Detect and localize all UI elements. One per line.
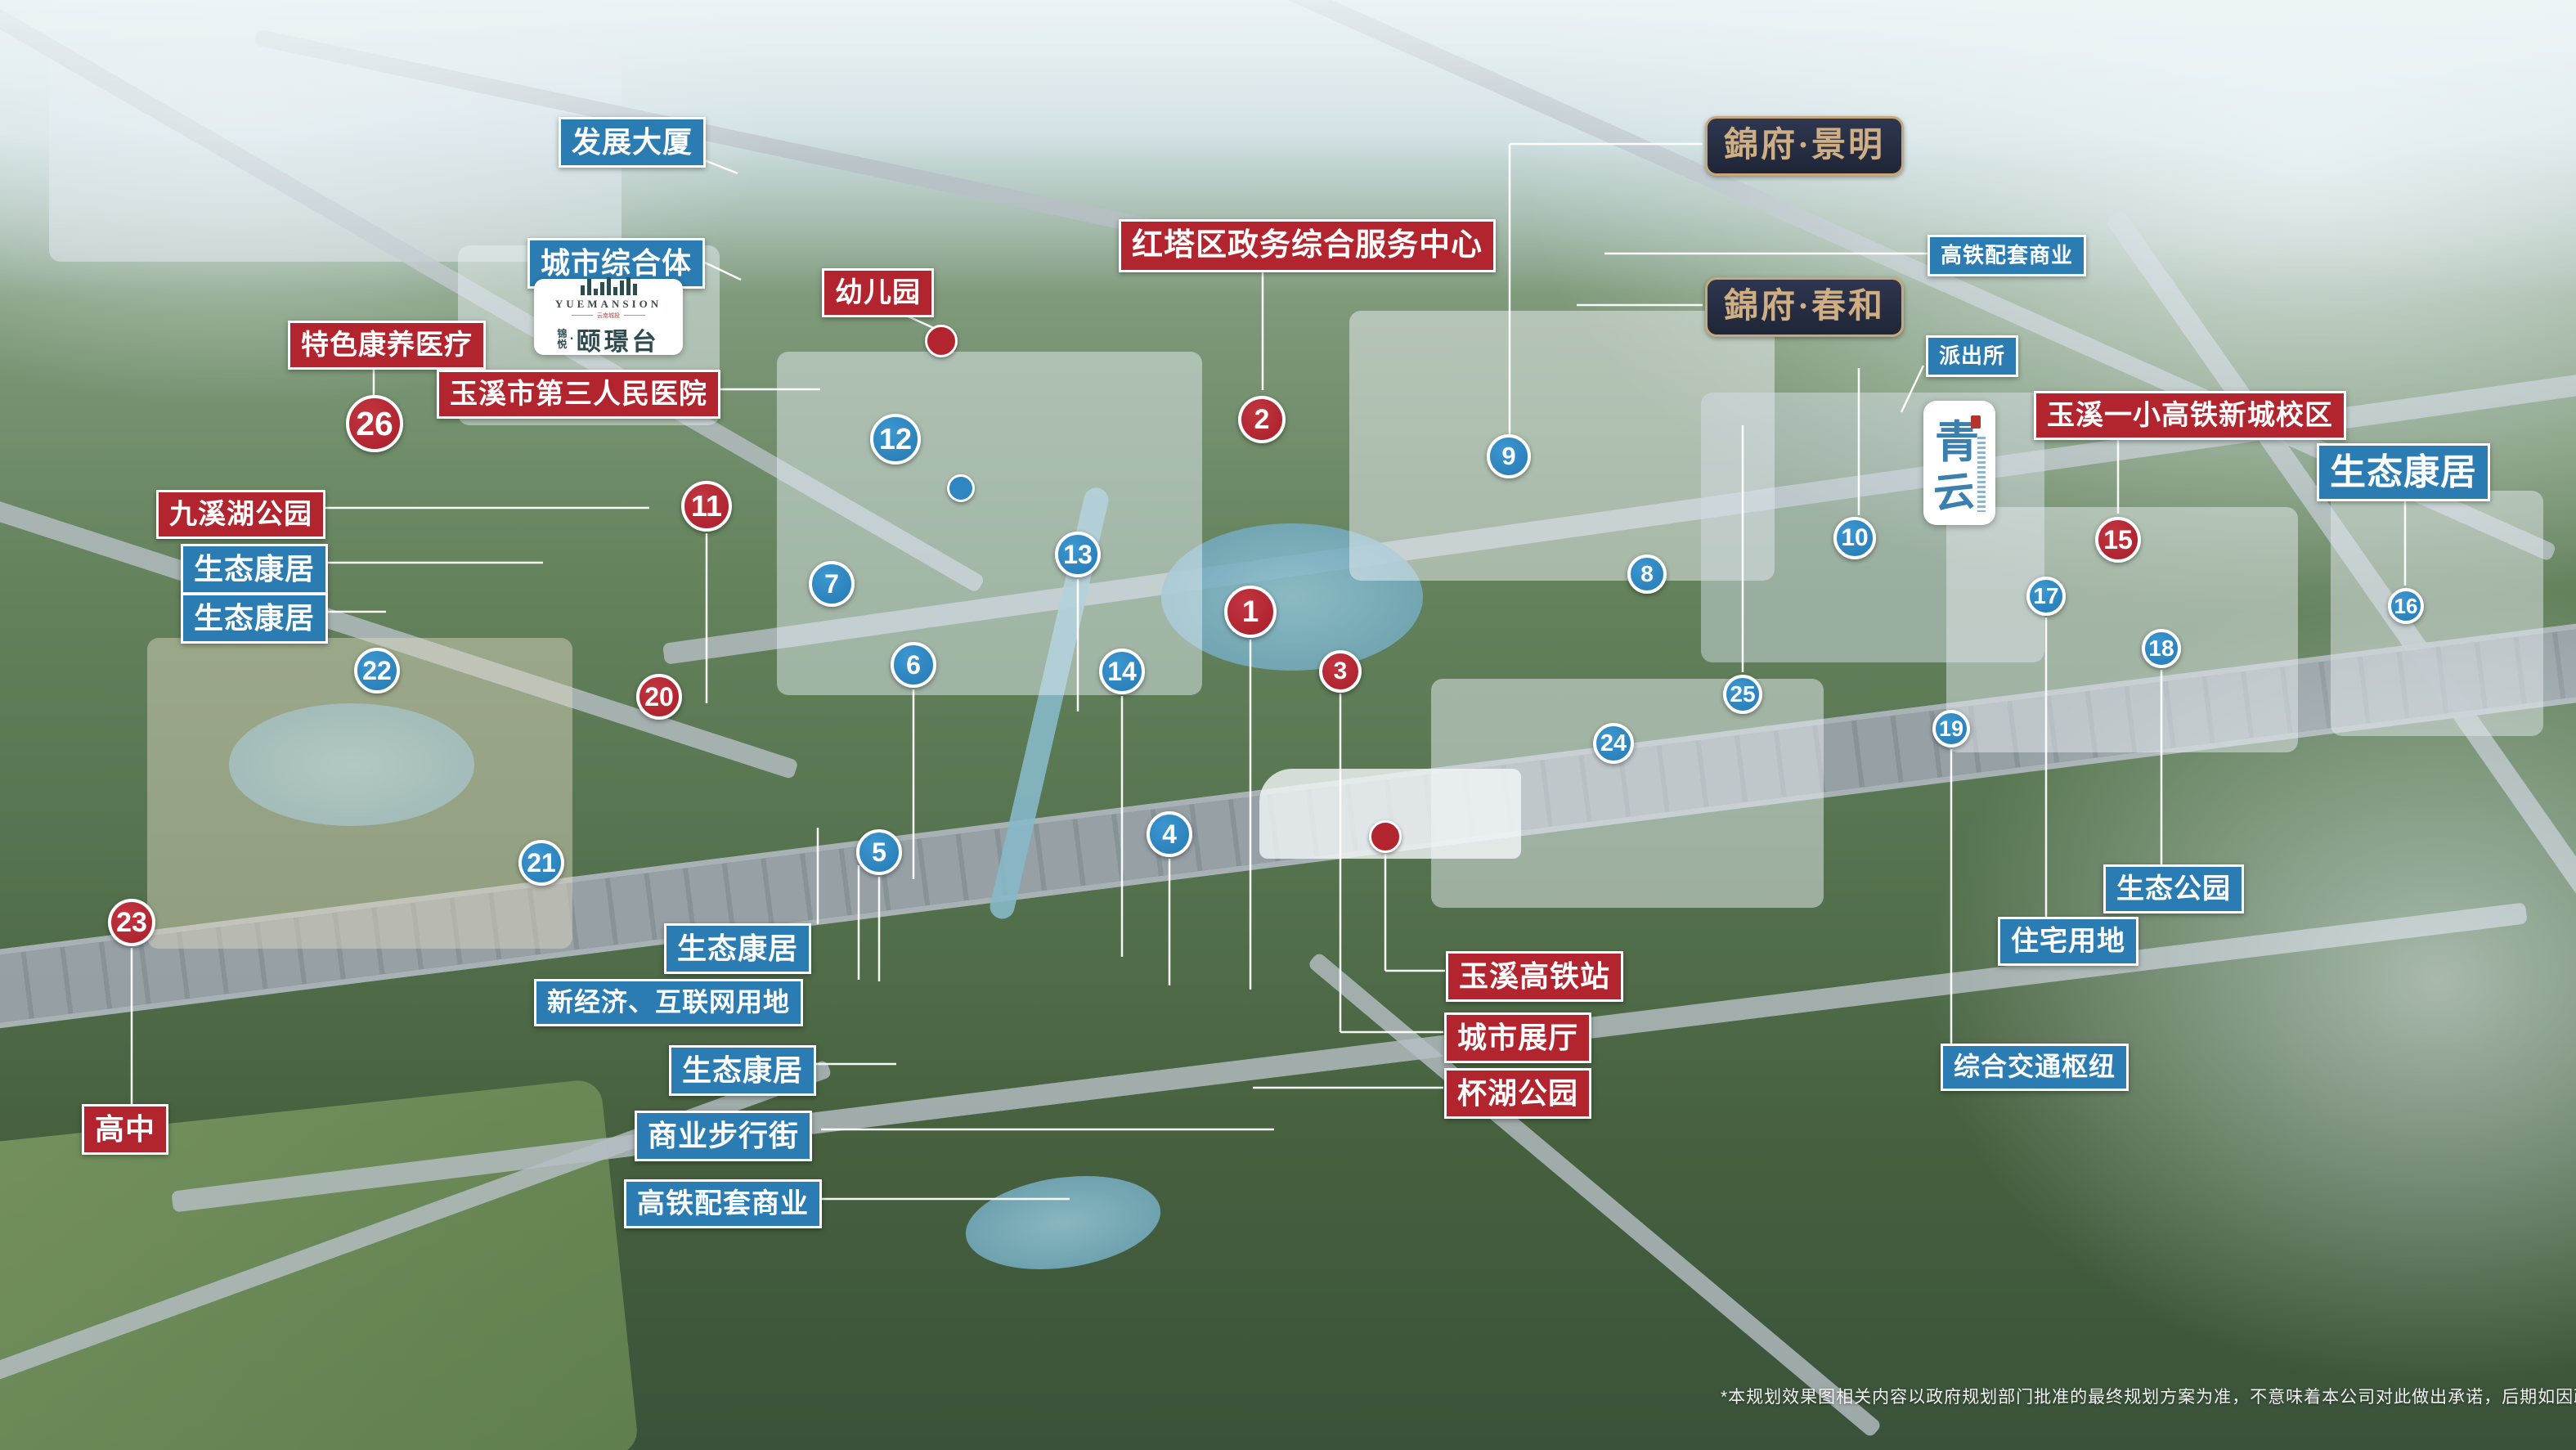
map-label-paichusuo: 派出所 [1926,335,2018,377]
map-label-zonghe-jiaotong-shuniu: 综合交通枢纽 [1941,1044,2129,1091]
map-label-shangye-buxingjie: 商业步行街 [635,1111,812,1161]
map-marker-10: 10 [1833,517,1876,559]
map-label-fazhan-dasha: 发展大厦 [559,117,706,168]
map-marker-12: 12 [870,414,921,465]
map-marker-11: 11 [681,481,732,532]
map-label-hongtaqu-zhengwu: 红塔区政务综合服务中心 [1119,219,1496,272]
map-label-gaozhong: 高中 [82,1104,168,1155]
divider [572,315,593,316]
map-marker-5: 5 [856,829,902,875]
map-marker-6: 6 [891,642,936,688]
map-label-jinfu-jingming: 錦府·景明 [1705,116,1904,176]
yuemansion-cn-name: 锦 悦 · 颐璟台 [557,321,659,357]
map-label-shengtai-kangju-l2: 生态康居 [181,593,328,644]
yuemansion-cn-dot: · [569,332,573,347]
map-marker-21: 21 [518,840,564,886]
map-marker-20: 20 [636,674,682,720]
map-label-shengtai-gongyuan: 生态公园 [2103,864,2244,914]
map-marker-9: 9 [1487,434,1531,478]
yuemansion-building-icon [581,277,637,295]
yuemansion-cn-small-2: 悦 [557,339,567,350]
map-marker-23: 23 [108,899,155,946]
map-dot-red-2 [1369,820,1402,853]
qingyun-logo: 青 云 [1923,401,1995,525]
map-label-tese-kangyang-yiliao: 特色康养医疗 [288,321,486,370]
map-marker-18: 18 [2142,629,2181,668]
map-marker-17: 17 [2026,577,2066,616]
map-label-shengtai-kangju-b2: 生态康居 [669,1045,816,1096]
map-label-gaotie-peitao-shangye-bottom: 高铁配套商业 [624,1179,822,1228]
map-dot-red-1 [925,325,958,357]
map-marker-26: 26 [346,395,403,452]
map-label-zhuzhai-yongdi: 住宅用地 [1998,917,2138,966]
yuemansion-logo: YUEMANSION 云南城投 锦 悦 · 颐璟台 [534,279,683,355]
map-marker-16: 16 [2388,588,2424,624]
qingyun-char-2: 云 [1930,458,1977,521]
qingyun-side-text [1977,437,1986,512]
leader-lines-overlay [0,0,2576,1450]
map-label-xinjingji-hulianwang: 新经济、互联网用地 [534,979,803,1026]
map-marker-15: 15 [2095,517,2141,563]
divider [624,315,645,316]
map-label-gaotie-peitao-shangye-top: 高铁配套商业 [1928,235,2086,276]
map-marker-25: 25 [1723,675,1762,714]
map-label-yuxi-yixiao-xiaoqu: 玉溪一小高铁新城校区 [2034,391,2346,440]
map-marker-3: 3 [1319,650,1362,693]
map-marker-14: 14 [1099,649,1145,694]
map-label-beihu-gongyuan: 杯湖公园 [1444,1068,1591,1119]
map-label-disan-renmin-yiyuan: 玉溪市第三人民医院 [437,370,720,419]
map-marker-7: 7 [809,561,855,607]
map-marker-2: 2 [1238,396,1286,443]
map-label-youeryuan: 幼儿园 [822,268,934,317]
map-label-chengshi-zhanting: 城市展厅 [1444,1012,1591,1063]
map-marker-13: 13 [1055,532,1101,577]
masterplan-aerial-map: 发展大厦城市综合体特色康养医疗玉溪市第三人民医院九溪湖公园生态康居生态康居幼儿园… [0,0,2576,1450]
yuemansion-cn-small-1: 锦 [557,329,567,339]
map-label-shengtai-kangju-l1: 生态康居 [181,544,328,595]
yuemansion-tagline: 云南城投 [572,312,645,320]
seal-icon [1971,415,1981,429]
yuemansion-brand-text: YUEMANSION [555,298,662,311]
disclaimer-text: *本规划效果图相关内容以政府规划部门批准的最终规划方案为准，不意味着本公司对此做… [1721,1384,2538,1408]
map-dot-blue-3 [947,474,975,502]
map-marker-19: 19 [1932,710,1970,747]
map-label-jiuxihu-gongyuan: 九溪湖公园 [156,490,325,539]
map-marker-4: 4 [1147,811,1192,857]
map-marker-24: 24 [1593,723,1634,764]
map-label-jinfu-chunhe: 錦府·春和 [1705,277,1904,337]
map-marker-1: 1 [1224,586,1277,638]
map-label-yuxi-gaotiezhan: 玉溪高铁站 [1446,951,1623,1002]
map-label-shengtai-kangju-b1: 生态康居 [664,923,811,974]
yuemansion-cn-large: 颐璟台 [577,321,660,357]
yuemansion-tagline-text: 云南城投 [597,312,620,320]
leader-line [1901,366,1923,412]
map-marker-22: 22 [354,648,400,694]
map-label-shengtai-kangju-right: 生态康居 [2317,443,2490,501]
map-marker-8: 8 [1627,554,1667,594]
